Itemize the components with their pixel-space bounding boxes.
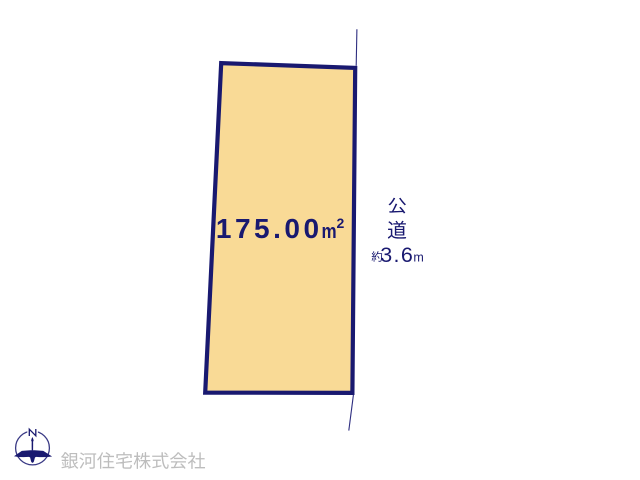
svg-text:175.00: 175.00 bbox=[216, 213, 323, 244]
svg-text:3.6: 3.6 bbox=[380, 243, 414, 267]
svg-text:m: m bbox=[413, 251, 423, 265]
svg-text:m: m bbox=[322, 219, 337, 242]
svg-text:2: 2 bbox=[337, 215, 345, 231]
